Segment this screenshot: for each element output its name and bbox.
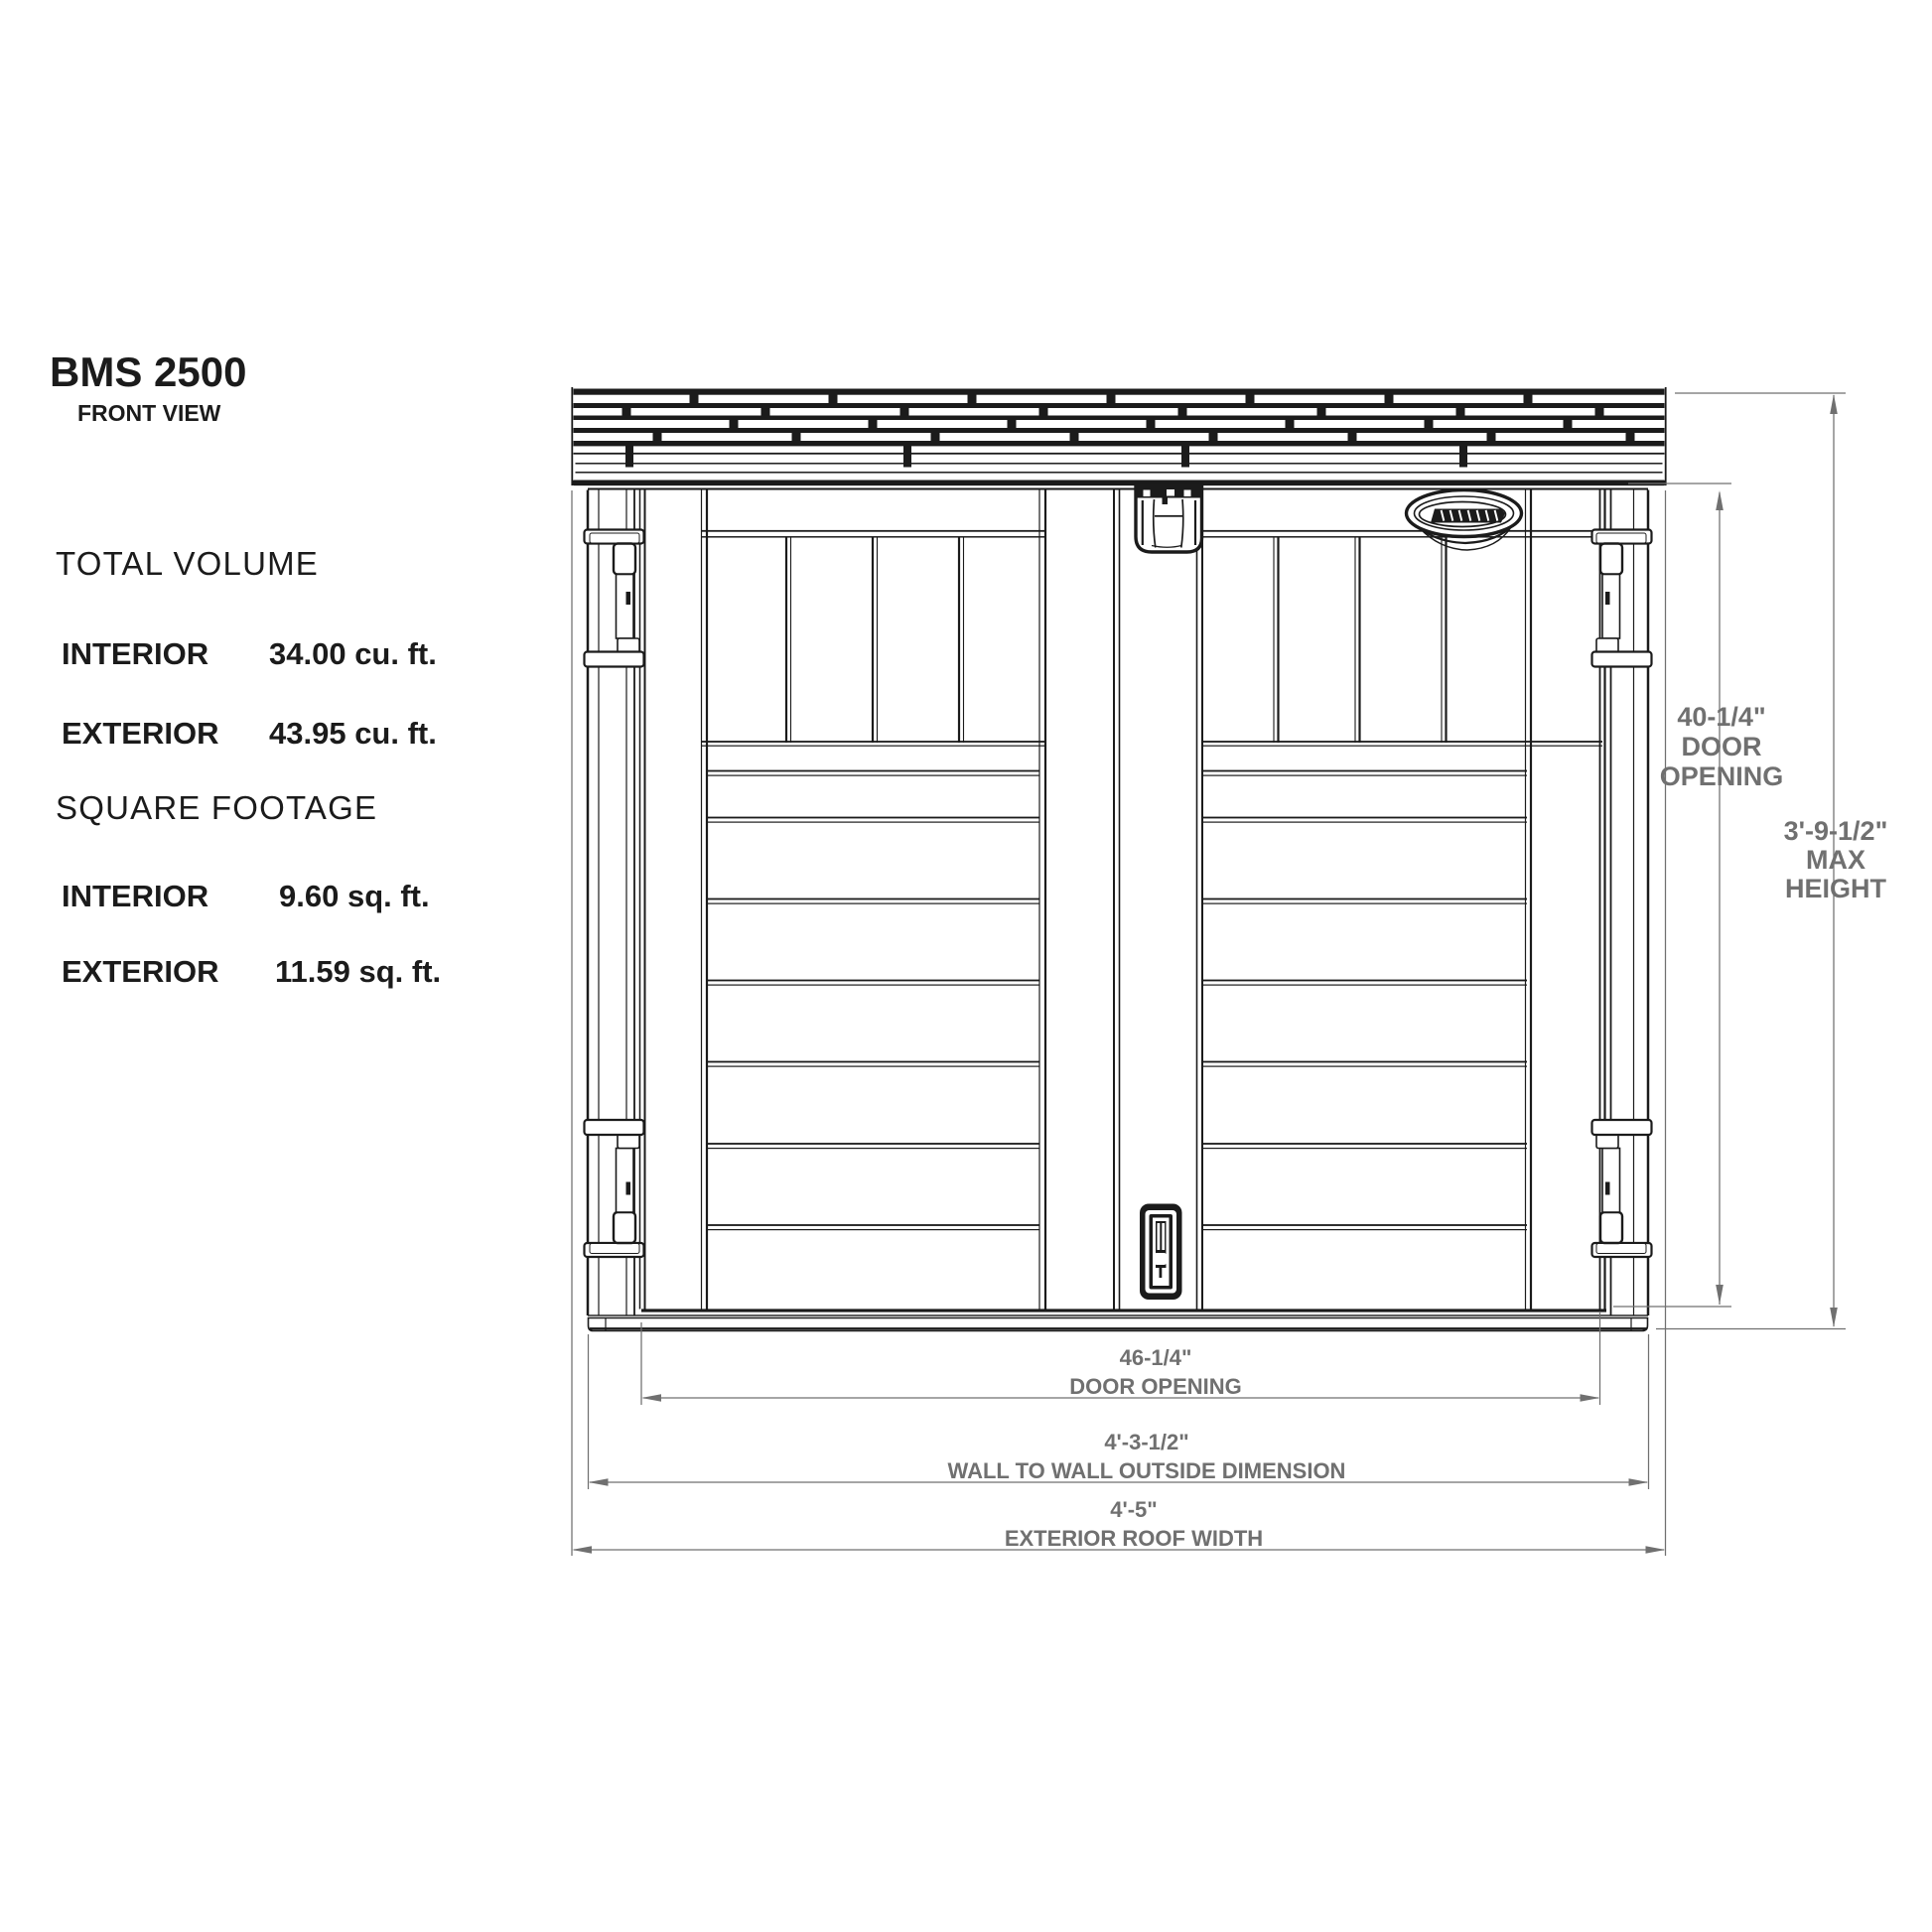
svg-text:BMS 2500: BMS 2500 bbox=[50, 348, 246, 395]
svg-text:43.95 cu. ft.: 43.95 cu. ft. bbox=[269, 716, 437, 751]
svg-text:WALL TO WALL OUTSIDE DIMENSION: WALL TO WALL OUTSIDE DIMENSION bbox=[948, 1458, 1346, 1483]
svg-text:4'-3-1/2": 4'-3-1/2" bbox=[1104, 1430, 1188, 1454]
svg-text:MAX: MAX bbox=[1806, 845, 1865, 875]
svg-text:3'-9-1/2": 3'-9-1/2" bbox=[1784, 816, 1888, 846]
svg-text:EXTERIOR: EXTERIOR bbox=[62, 716, 218, 751]
svg-text:TOTAL VOLUME: TOTAL VOLUME bbox=[56, 545, 319, 582]
svg-text:HEIGHT: HEIGHT bbox=[1785, 874, 1887, 903]
svg-text:DOOR: DOOR bbox=[1682, 732, 1762, 761]
svg-text:34.00 cu. ft.: 34.00 cu. ft. bbox=[269, 636, 437, 671]
svg-text:SQUARE FOOTAGE: SQUARE FOOTAGE bbox=[56, 789, 377, 826]
svg-text:40-1/4": 40-1/4" bbox=[1677, 702, 1765, 732]
svg-text:OPENING: OPENING bbox=[1660, 761, 1784, 791]
svg-text:4'-5": 4'-5" bbox=[1110, 1497, 1157, 1522]
svg-text:EXTERIOR ROOF WIDTH: EXTERIOR ROOF WIDTH bbox=[1005, 1526, 1263, 1551]
svg-text:FRONT VIEW: FRONT VIEW bbox=[77, 400, 221, 426]
svg-text:9.60 sq. ft.: 9.60 sq. ft. bbox=[279, 879, 430, 913]
svg-text:DOOR OPENING: DOOR OPENING bbox=[1069, 1374, 1242, 1399]
svg-text:INTERIOR: INTERIOR bbox=[62, 879, 208, 913]
svg-text:11.59 sq. ft.: 11.59 sq. ft. bbox=[275, 954, 441, 989]
svg-text:EXTERIOR: EXTERIOR bbox=[62, 954, 218, 989]
svg-text:INTERIOR: INTERIOR bbox=[62, 636, 208, 671]
svg-text:46-1/4": 46-1/4" bbox=[1120, 1345, 1192, 1370]
